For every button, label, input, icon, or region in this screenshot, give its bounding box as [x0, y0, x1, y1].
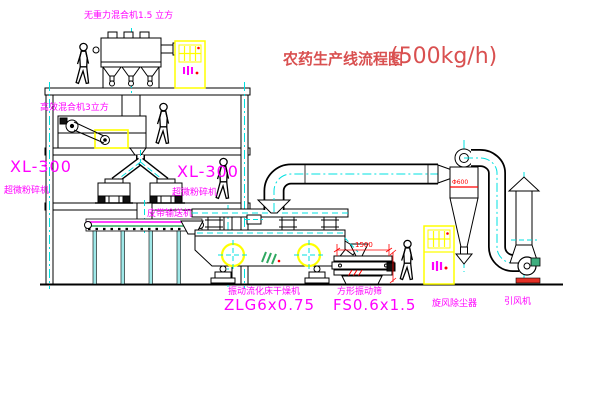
cad-flow-diagram: 农药生产线流程图 (500kg/h) 无重力混合机1.5 立方 高效混合机3立方…	[0, 0, 600, 403]
screen-length-dimension: 1500	[355, 242, 373, 249]
cyclone-diameter-note: Φ600	[452, 180, 468, 186]
drawing-title: 农药生产线流程图	[283, 52, 403, 67]
fan-base	[516, 278, 540, 283]
control-cabinet-2	[424, 226, 454, 284]
mill-center-name-label: 超微粉碎机	[172, 189, 217, 198]
fan-label: 引风机	[504, 298, 531, 307]
fluid-bed-dryer	[192, 209, 358, 283]
exhaust-duct	[258, 165, 452, 213]
high-eff-mixer-label: 高效混合机3立方	[40, 104, 109, 113]
person-figure	[156, 103, 168, 143]
discharge-funnels	[103, 67, 159, 86]
conveyor-legs	[93, 231, 181, 284]
person-figure	[400, 240, 412, 279]
dryer-model-label: ZLG6x0.75	[224, 298, 315, 313]
wall-pipe-stub	[245, 215, 263, 224]
mill-left-name-label: 超微粉碎机	[4, 187, 49, 196]
gravity-mixer-label: 无重力混合机1.5 立方	[84, 12, 173, 21]
cyclone-label: 旋风除尘器	[432, 300, 477, 309]
screen-model-label: FS0.6x1.5	[333, 298, 416, 313]
control-cabinet-1	[175, 41, 205, 88]
mill-left-model-label: XL-300	[10, 159, 72, 175]
pulverizer-left	[95, 179, 133, 203]
person-figure	[76, 43, 88, 83]
mill-center-model-label: XL-300	[177, 164, 239, 180]
induced-draft-fan	[516, 257, 540, 283]
belt-conveyor-label: 皮带输送机	[147, 210, 192, 219]
fan-motor	[531, 258, 540, 266]
drawing-capacity: (500kg/h)	[390, 46, 497, 68]
belt-conveyor	[85, 219, 204, 284]
indicator-dot	[446, 232, 449, 235]
indicator-dot	[197, 47, 200, 50]
rain-cap	[509, 177, 539, 191]
